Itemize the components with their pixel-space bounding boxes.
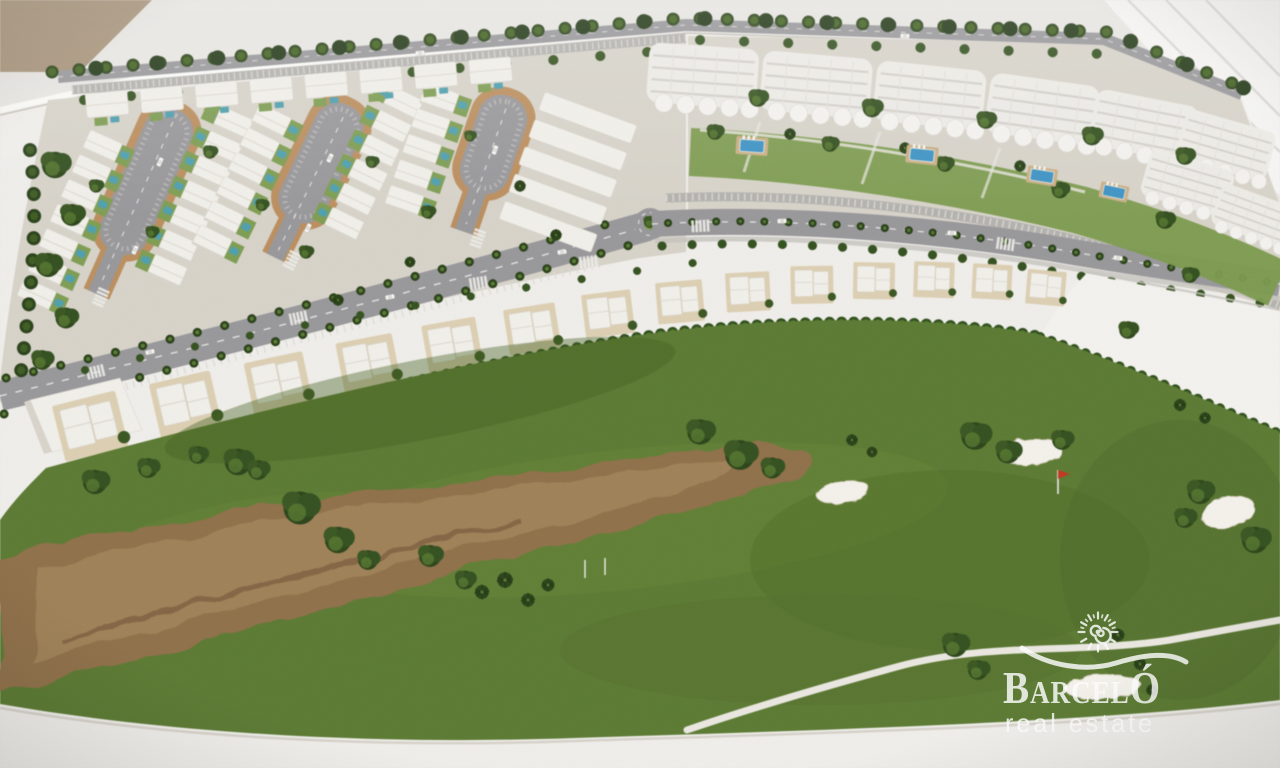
vignette (0, 0, 1280, 768)
model-photo: BarcelÓ real estate (0, 0, 1280, 768)
